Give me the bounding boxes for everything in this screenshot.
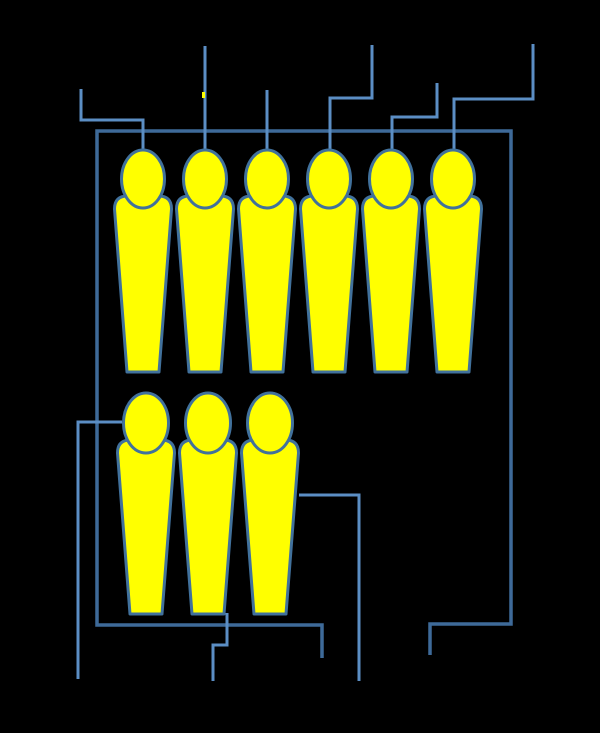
person-head — [308, 150, 351, 208]
person-body — [118, 440, 175, 614]
callout-bottom-right — [299, 495, 359, 681]
person-body — [177, 196, 234, 372]
callout-top-6 — [454, 44, 533, 158]
callout-bottom-middle — [213, 613, 227, 681]
person-head — [248, 393, 293, 453]
person-figure-top-row-6 — [425, 150, 482, 372]
person-head — [432, 150, 475, 208]
person-head — [186, 393, 231, 453]
person-body — [301, 196, 358, 372]
person-head — [184, 150, 227, 208]
person-body — [425, 196, 482, 372]
yellow-speck-artifact — [202, 92, 205, 98]
person-figure-bottom-row-3 — [242, 393, 299, 614]
person-head — [246, 150, 289, 208]
diagram-canvas — [0, 0, 600, 733]
callout-bottom-left — [78, 422, 122, 679]
person-figure-top-row-3 — [239, 150, 296, 372]
person-figure-top-row-1 — [115, 150, 172, 372]
callout-top-1 — [81, 89, 143, 158]
person-body — [363, 196, 420, 372]
person-body — [242, 440, 299, 614]
people-pictogram-diagram — [0, 0, 600, 733]
person-head — [122, 150, 165, 208]
person-figure-bottom-row-1 — [118, 393, 175, 614]
person-figure-bottom-row-2 — [180, 393, 237, 614]
person-figure-top-row-5 — [363, 150, 420, 372]
person-body — [239, 196, 296, 372]
person-figure-top-row-2 — [177, 150, 234, 372]
person-figure-top-row-4 — [301, 150, 358, 372]
callout-top-5 — [392, 83, 437, 158]
person-body — [180, 440, 237, 614]
person-head — [370, 150, 413, 208]
person-body — [115, 196, 172, 372]
person-head — [124, 393, 169, 453]
callout-top-4 — [330, 45, 372, 158]
